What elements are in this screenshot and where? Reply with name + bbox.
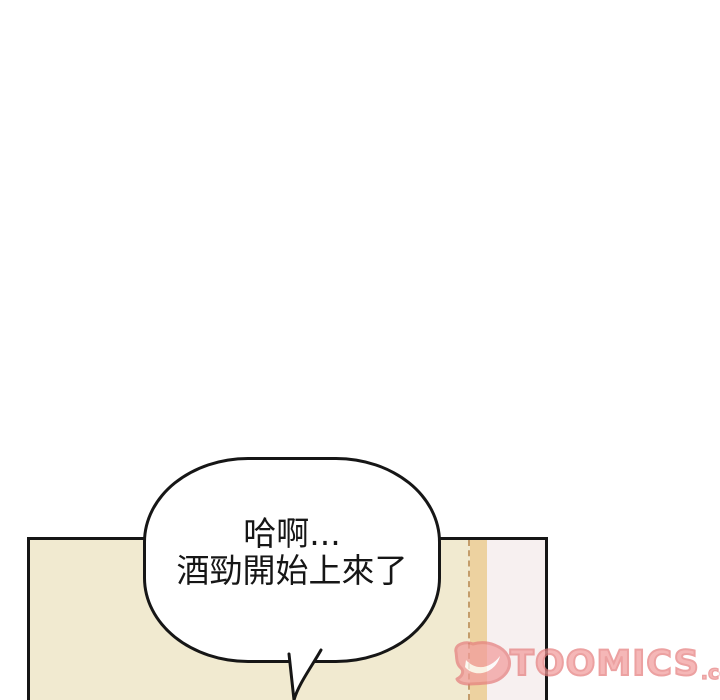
watermark-domain-suffix: .com [701,662,720,684]
comic-page: 哈啊... 酒勁開始上來了 TOOMICS .com [0,0,720,700]
dialogue-line-1: 哈啊... [243,515,340,552]
door-frame-line [468,540,470,700]
dialogue-line-2: 酒勁開始上來了 [177,552,408,589]
speech-bubble-tail [268,628,340,700]
door-frame-stripe [470,540,487,700]
wall-section [487,540,545,700]
dialogue-text: 哈啊... 酒勁開始上來了 [177,515,408,605]
